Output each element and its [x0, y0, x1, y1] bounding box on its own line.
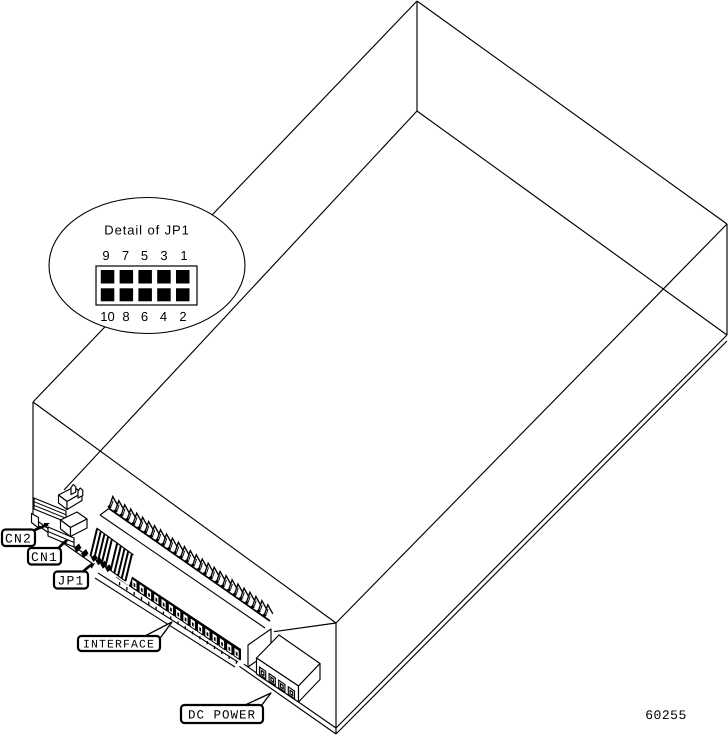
svg-text:Detail of JP1: Detail of JP1: [104, 223, 189, 238]
svg-text:1: 1: [180, 248, 187, 263]
svg-text:6: 6: [141, 309, 148, 324]
svg-text:5: 5: [141, 248, 148, 263]
svg-text:7: 7: [122, 248, 129, 263]
svg-text:DC POWER: DC POWER: [188, 709, 256, 723]
svg-text:2: 2: [179, 309, 186, 324]
svg-text:10: 10: [100, 309, 114, 324]
svg-text:4: 4: [160, 309, 167, 324]
svg-text:9: 9: [102, 248, 109, 263]
svg-text:CN2: CN2: [5, 531, 32, 546]
svg-text:JP1: JP1: [57, 574, 84, 589]
svg-text:8: 8: [122, 309, 129, 324]
svg-text:INTERFACE: INTERFACE: [83, 639, 155, 652]
svg-text:3: 3: [160, 248, 167, 263]
svg-text:CN1: CN1: [31, 550, 58, 565]
svg-text:60255: 60255: [645, 708, 687, 723]
